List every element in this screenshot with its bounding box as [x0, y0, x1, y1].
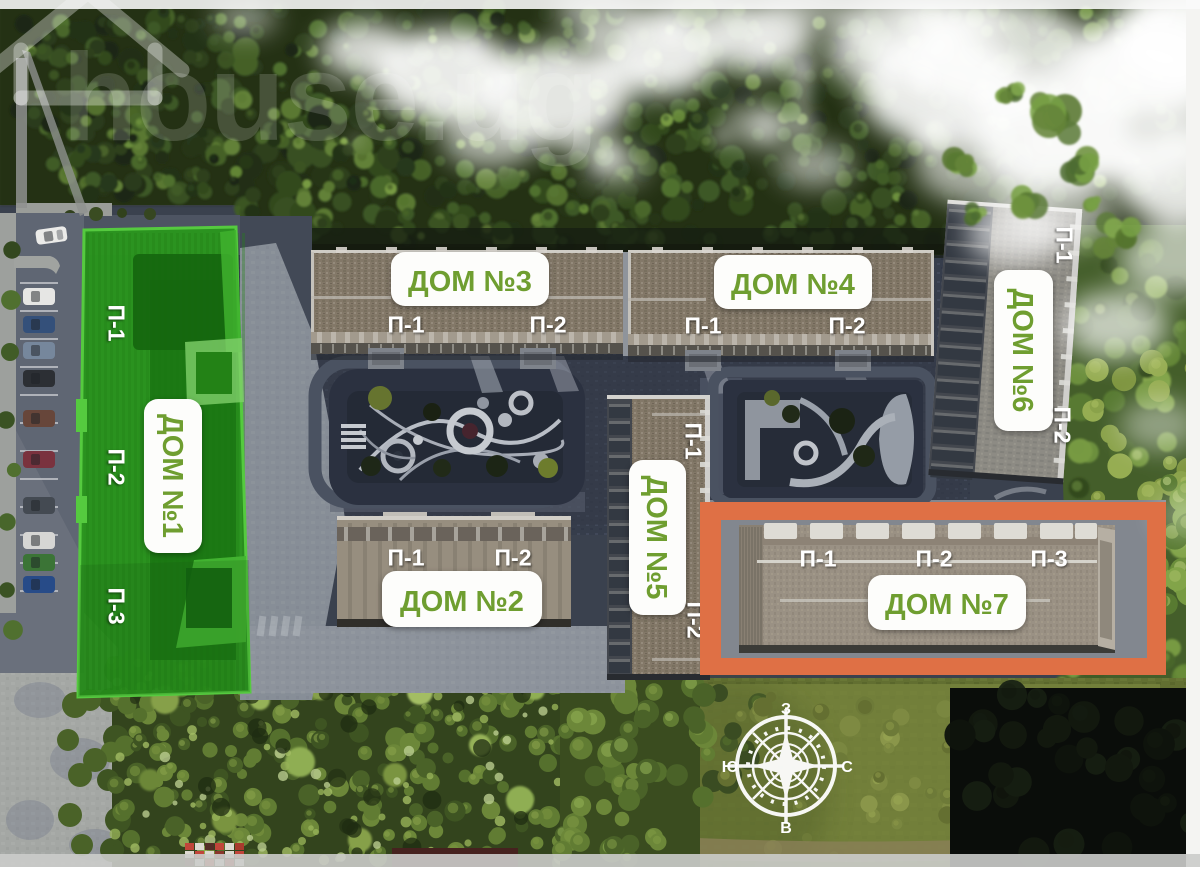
svg-text:house.ug: house.ug: [62, 29, 597, 167]
svg-text:П-2: П-2: [829, 312, 866, 338]
svg-text:ДОМ №5: ДОМ №5: [640, 476, 672, 600]
svg-text:ДОМ №4: ДОМ №4: [731, 269, 855, 301]
svg-text:П-1: П-1: [800, 545, 837, 571]
svg-text:ДОМ №6: ДОМ №6: [1006, 289, 1038, 413]
svg-text:Ю: Ю: [722, 759, 739, 776]
svg-text:П-3: П-3: [104, 588, 130, 625]
svg-text:ДОМ №7: ДОМ №7: [885, 589, 1009, 621]
svg-text:В: В: [780, 820, 792, 837]
svg-text:П-2: П-2: [1050, 407, 1076, 444]
svg-text:З: З: [781, 701, 791, 718]
svg-text:П-1: П-1: [104, 305, 130, 342]
svg-text:П-2: П-2: [495, 544, 532, 570]
svg-text:ДОМ №1: ДОМ №1: [156, 414, 188, 538]
svg-text:П-2: П-2: [530, 311, 567, 337]
svg-text:П-1: П-1: [388, 544, 425, 570]
svg-text:С: С: [841, 759, 853, 776]
svg-text:ДОМ №3: ДОМ №3: [408, 266, 532, 298]
svg-text:ДОМ №2: ДОМ №2: [400, 586, 524, 618]
svg-text:П-2: П-2: [916, 545, 953, 571]
svg-text:П-2: П-2: [104, 449, 130, 486]
svg-text:П-1: П-1: [1052, 227, 1078, 264]
svg-text:П-1: П-1: [681, 423, 707, 460]
svg-text:П-1: П-1: [388, 311, 425, 337]
svg-text:П-3: П-3: [1031, 545, 1068, 571]
svg-text:П-1: П-1: [685, 312, 722, 338]
